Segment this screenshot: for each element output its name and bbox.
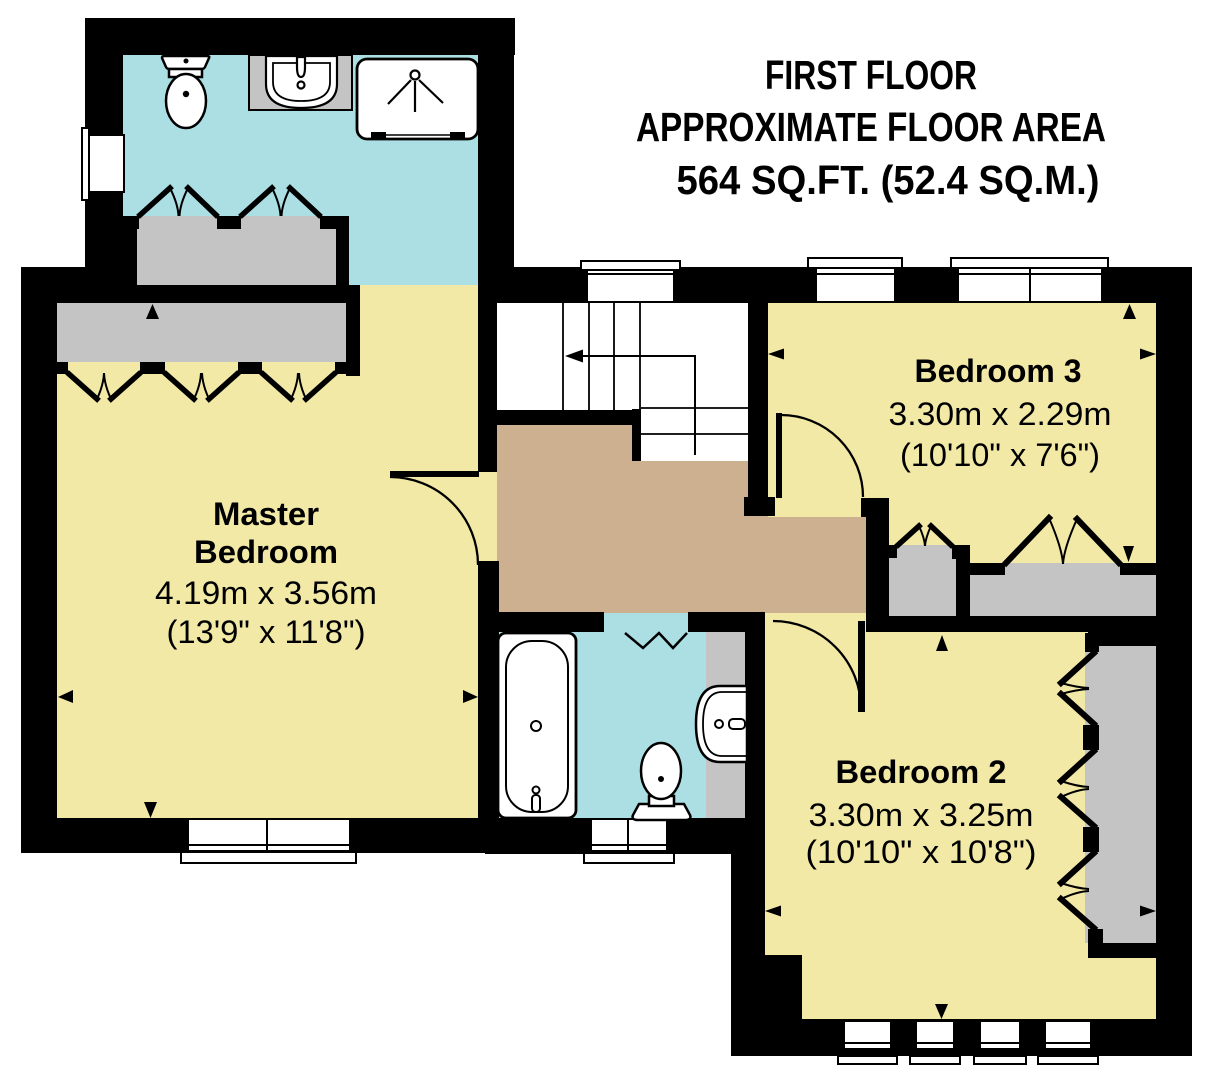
svg-text:3.30m x 3.25m: 3.30m x 3.25m <box>809 797 1034 833</box>
svg-text:FIRST FLOOR: FIRST FLOOR <box>765 52 977 98</box>
svg-text:564 SQ.FT. (52.4 SQ.M.): 564 SQ.FT. (52.4 SQ.M.) <box>677 157 1100 203</box>
svg-text:(10'10" x 7'6"): (10'10" x 7'6") <box>900 437 1100 473</box>
svg-text:3.30m x 2.29m: 3.30m x 2.29m <box>889 396 1112 432</box>
svg-text:4.19m x 3.56m: 4.19m x 3.56m <box>155 575 377 611</box>
svg-text:Master: Master <box>213 496 319 532</box>
svg-text:APPROXIMATE FLOOR AREA: APPROXIMATE FLOOR AREA <box>636 104 1106 150</box>
svg-text:Bedroom 3: Bedroom 3 <box>915 353 1082 389</box>
svg-text:Bedroom 2: Bedroom 2 <box>836 754 1007 790</box>
svg-text:Bedroom: Bedroom <box>194 534 338 570</box>
svg-text:(13'9" x 11'8"): (13'9" x 11'8") <box>167 614 366 650</box>
svg-text:(10'10" x 10'8"): (10'10" x 10'8") <box>806 834 1037 870</box>
